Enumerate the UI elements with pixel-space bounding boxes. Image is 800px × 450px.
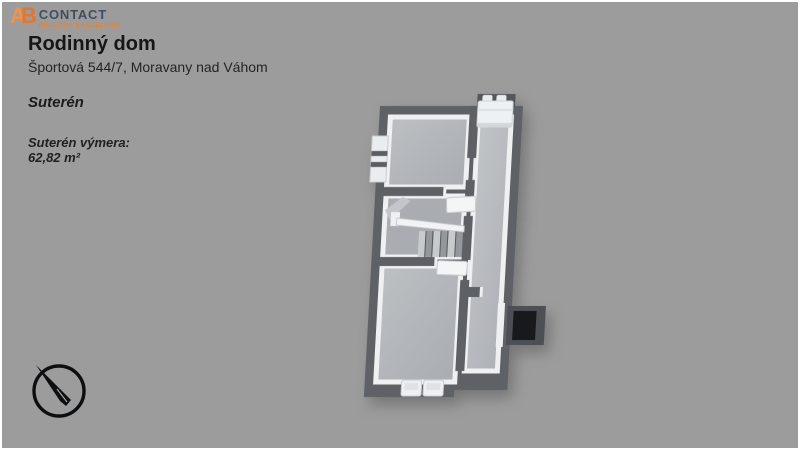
door-leaf <box>436 260 467 275</box>
floor-plan-3d <box>0 0 800 450</box>
real-estate-floorplan-page: AB CONTACT REALITNÁ KANCELÁRIA Rodinný d… <box>0 0 800 450</box>
fixture-top-right <box>477 101 513 127</box>
door-leaf <box>447 196 476 212</box>
basement-building <box>358 94 558 397</box>
wall-end-cap <box>479 287 483 297</box>
room-top-left-floor <box>387 117 470 187</box>
room-bottom-floor <box>376 266 461 382</box>
stair-treads <box>418 231 463 257</box>
basement-window-left <box>370 136 389 182</box>
wall-end-cap <box>443 187 446 196</box>
compass-icon <box>24 356 94 426</box>
